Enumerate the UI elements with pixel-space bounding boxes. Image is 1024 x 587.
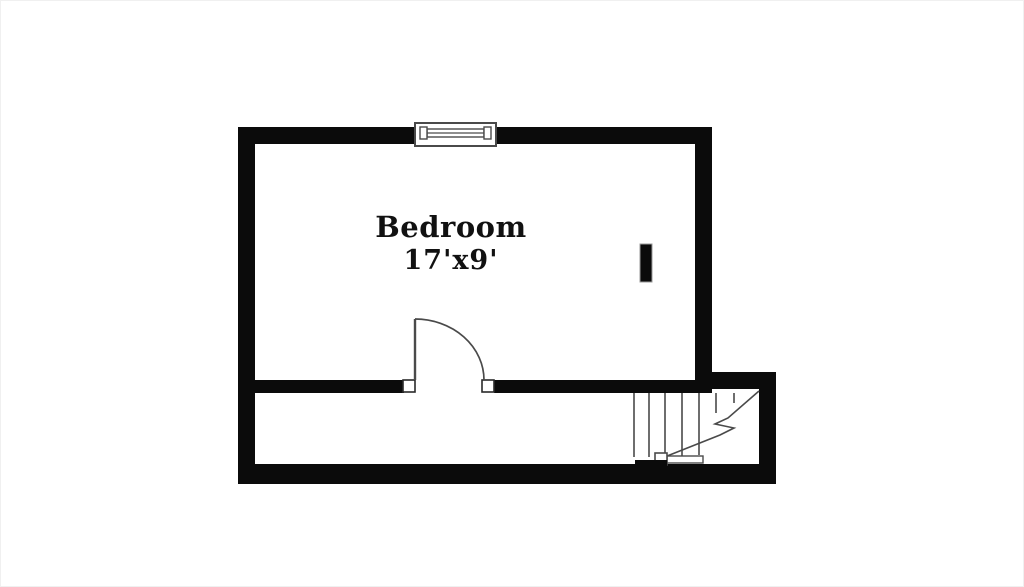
window-end-cap-right [484, 127, 491, 139]
wall-right-bedroom [695, 127, 712, 393]
stair-landing-edge [635, 460, 667, 466]
door-swing-arc [415, 319, 484, 380]
floorplan-canvas: Bedroom 17'x9' [1, 1, 1024, 587]
wall-top-left [238, 127, 416, 144]
room-label-group: Bedroom 17'x9' [375, 210, 526, 276]
wall-interior-right-of-door [494, 380, 695, 393]
window-icon [415, 123, 496, 146]
wall-bottom [238, 464, 776, 484]
wall-top-right [495, 127, 712, 144]
room-name-label: Bedroom [375, 210, 526, 244]
stairs-icon [634, 391, 759, 466]
window-end-cap-left [420, 127, 427, 139]
walls [238, 127, 776, 484]
column-marker [640, 244, 652, 282]
door-jamb-left [403, 380, 415, 392]
stair-break-line [652, 391, 759, 462]
stair-handrail [667, 456, 703, 463]
door-icon [403, 319, 494, 392]
wall-left [238, 127, 255, 484]
floorplan-image: Bedroom 17'x9' [0, 0, 1024, 587]
door-jamb-right [482, 380, 494, 392]
wall-interior-left-of-door [255, 380, 404, 393]
room-dimensions-label: 17'x9' [404, 245, 499, 276]
